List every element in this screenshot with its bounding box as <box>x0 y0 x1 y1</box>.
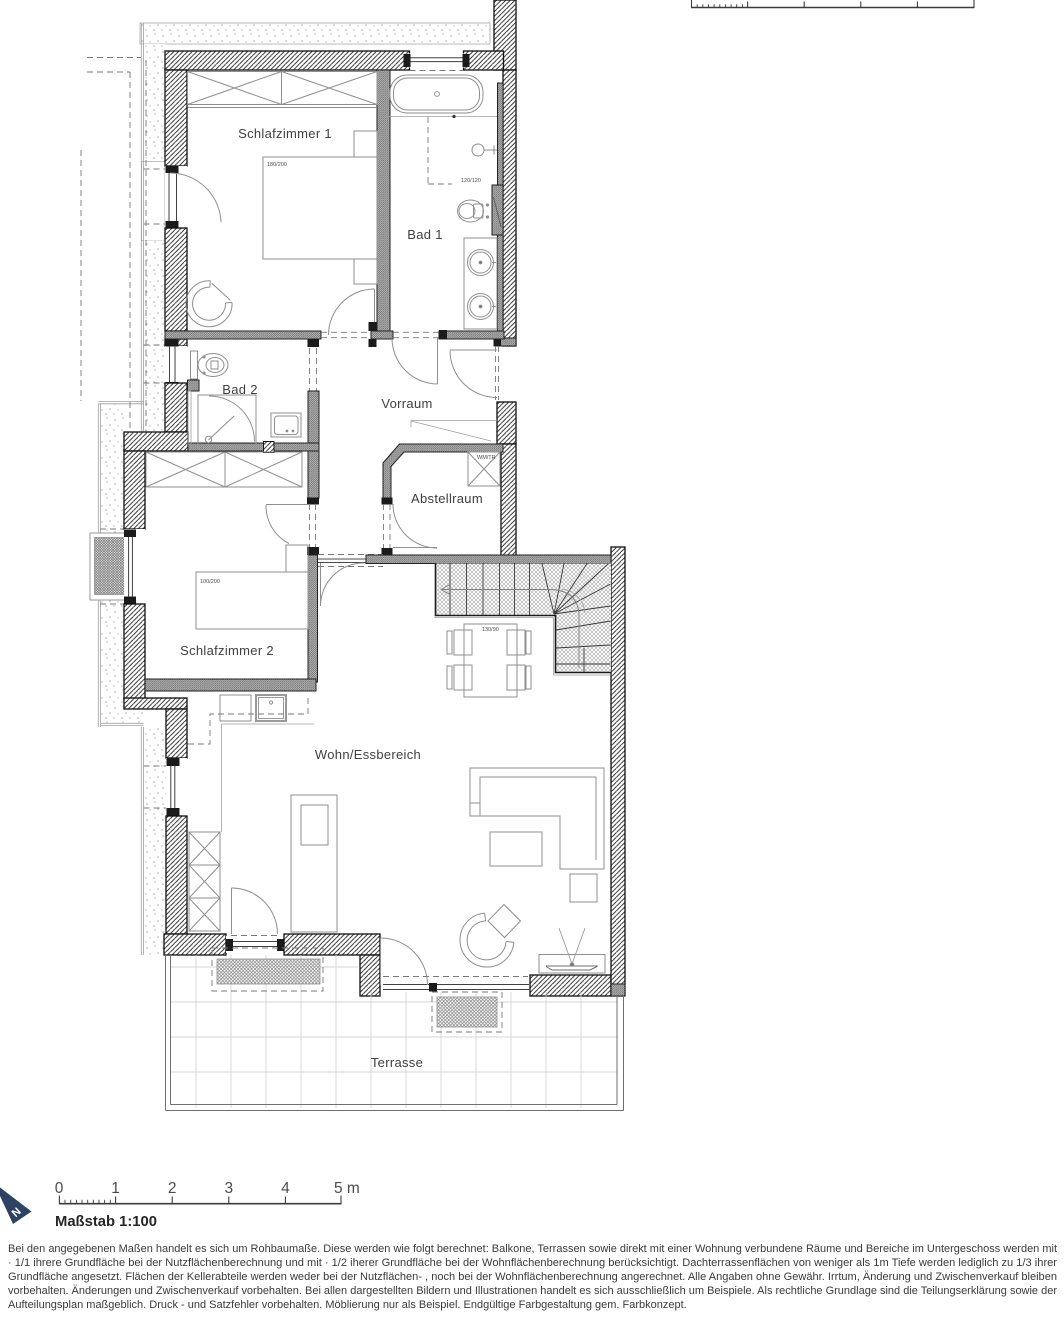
svg-text:1: 1 <box>111 1180 120 1197</box>
svg-text:Schlafzimmer 1: Schlafzimmer 1 <box>238 126 332 141</box>
svg-text:· 1/1 ihrere Grundfläche bei d: · 1/1 ihrere Grundfläche bei der Nutzflä… <box>8 1257 1057 1269</box>
svg-text:vorbehalten. Änderungen und Zw: vorbehalten. Änderungen und Zwischenverk… <box>8 1285 1057 1297</box>
svg-text:Terrasse: Terrasse <box>371 1055 423 1070</box>
svg-text:Wohn/Essbereich: Wohn/Essbereich <box>315 747 421 762</box>
svg-text:Bei den angegebenen Maßen hand: Bei den angegebenen Maßen handelt es sic… <box>8 1243 1057 1255</box>
svg-text:Grundfläche angesetzt. Flächen: Grundfläche angesetzt. Flächen der Kelle… <box>8 1271 1057 1283</box>
svg-text:Vorraum: Vorraum <box>381 396 432 411</box>
svg-text:Maßstab 1:100: Maßstab 1:100 <box>55 1214 157 1230</box>
svg-text:3: 3 <box>224 1180 233 1197</box>
svg-text:5 m: 5 m <box>334 1180 360 1197</box>
svg-text:100/200: 100/200 <box>200 579 220 585</box>
svg-text:Abstellraum: Abstellraum <box>411 491 483 506</box>
svg-text:120/120: 120/120 <box>461 178 481 184</box>
svg-text:2: 2 <box>168 1180 177 1197</box>
svg-text:Bad 1: Bad 1 <box>407 227 442 242</box>
svg-text:Bad 2: Bad 2 <box>222 382 257 397</box>
svg-text:Aufteilungsplan maßgeblich. Dr: Aufteilungsplan maßgeblich. Druck - und … <box>8 1299 687 1311</box>
svg-text:4: 4 <box>281 1180 290 1197</box>
svg-text:0: 0 <box>55 1180 64 1197</box>
svg-text:180/200: 180/200 <box>267 162 287 168</box>
svg-text:Schlafzimmer 2: Schlafzimmer 2 <box>180 643 274 658</box>
svg-text:WM/TR: WM/TR <box>477 455 496 461</box>
svg-text:130/90: 130/90 <box>482 627 499 633</box>
